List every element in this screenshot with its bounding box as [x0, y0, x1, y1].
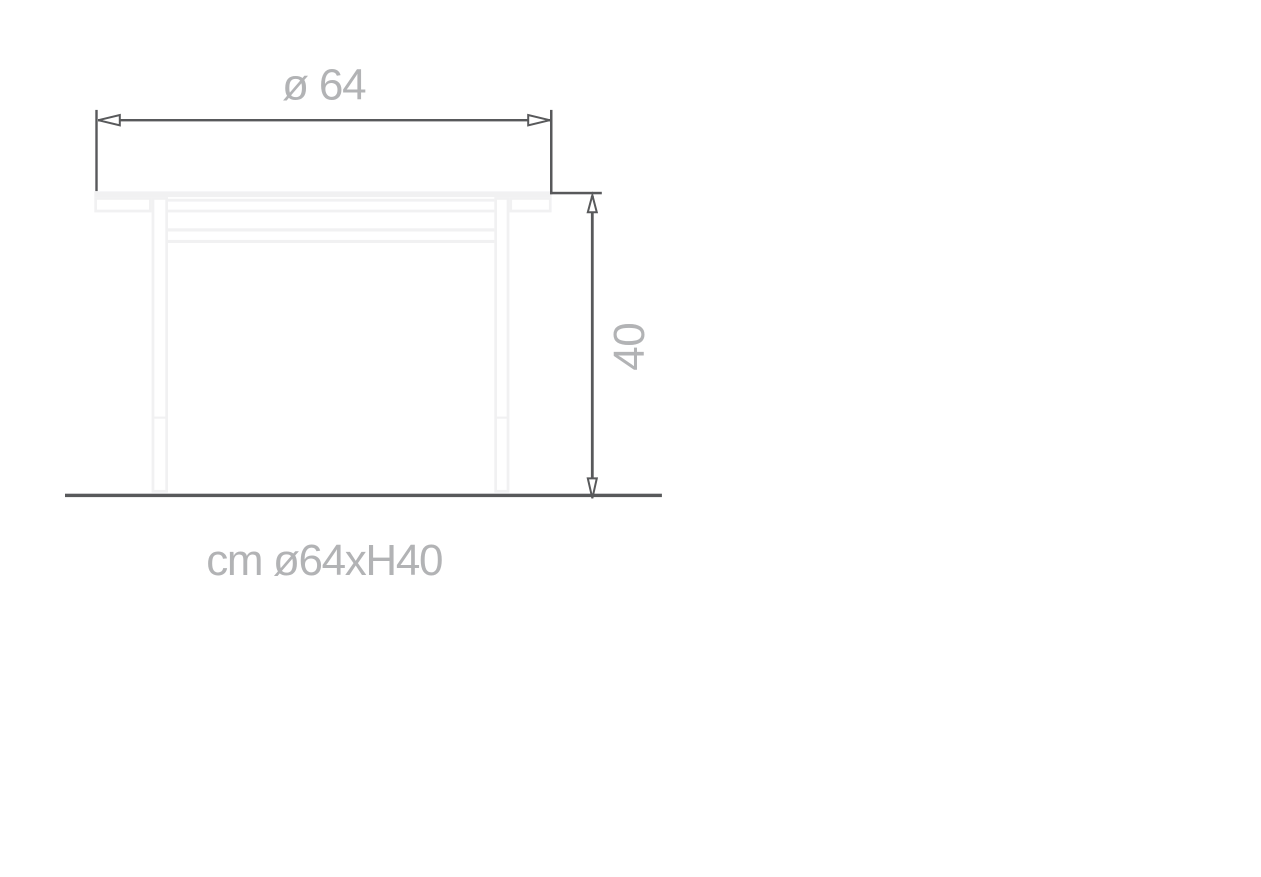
svg-text:ø 64: ø 64 — [282, 61, 366, 110]
svg-text:cm ø64xH40: cm ø64xH40 — [206, 536, 442, 585]
svg-text:40: 40 — [605, 323, 654, 371]
